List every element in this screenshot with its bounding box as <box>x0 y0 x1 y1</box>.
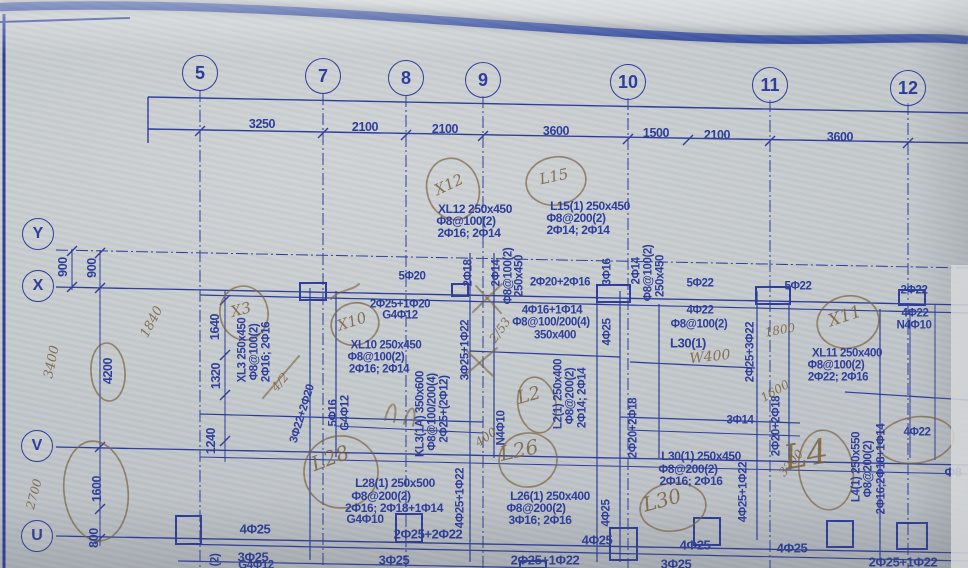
grid-bubble-12: 12 <box>890 70 926 106</box>
blueprint-photo: XL12 250x450Φ8@100(2)2Φ16; 2Φ14L15(1) 25… <box>0 0 968 568</box>
beam-label: L30(1) <box>670 337 706 350</box>
beam-label: G4Φ12 <box>382 310 418 322</box>
beam-label: L2(1) 250x400 <box>553 359 565 429</box>
handwritten-note: 2/53 <box>487 316 512 345</box>
beam-label: 2Φ16; 2Φ16 <box>261 322 273 382</box>
beam-label: 2Φ18 <box>463 259 475 286</box>
beam-label: Φ8@100(2) <box>249 324 261 381</box>
dimension-label: 1600 <box>91 476 104 502</box>
beam-label: 2Φ25+(2Φ12) <box>439 375 451 442</box>
beam-label: G4Φ12 <box>340 395 352 431</box>
beam-label: 2Φ25+1Φ22 <box>869 556 938 568</box>
dimension-label: 3600 <box>827 131 853 144</box>
beam-label: Φ8@100/200(4) <box>512 317 589 329</box>
beam-label: L4(1) 250x550 <box>851 432 863 502</box>
handwritten-note: X12 <box>432 172 465 198</box>
beam-label: 2Φ14 <box>631 257 643 284</box>
handwritten-note: 3400 <box>42 344 62 379</box>
beam-label: N4Φ10 <box>897 320 932 332</box>
grid-bubble-U: U <box>21 520 53 552</box>
handwritten-note: X11 <box>826 304 863 331</box>
beam-label: 4Φ25 <box>680 539 711 552</box>
handwritten-note: L15 <box>538 167 570 188</box>
beam-label: 4Φ22 <box>903 427 930 439</box>
beam-label: 2Φ22 <box>900 285 927 297</box>
beam-label: 4Φ25 <box>582 534 613 547</box>
beam-label: 2Φ16; 2Φ14 <box>349 364 409 376</box>
beam-label: XL11 250x400 <box>812 348 882 360</box>
beam-label: 2Φ14; 2Φ14 <box>577 368 589 428</box>
beam-label: 4Φ25 <box>240 523 271 536</box>
beam-label: 4Φ25 <box>601 499 613 526</box>
grid-bubble-8: 8 <box>388 60 424 96</box>
beam-label: G4Φ12 <box>238 560 274 568</box>
beam-label: 2Φ14 <box>491 259 503 286</box>
beam-label: Φ8@100(2) <box>671 319 728 331</box>
beam-label: 2Φ20+2Φ18 <box>771 396 783 456</box>
beam-label: Φ8@200(2) <box>565 368 577 425</box>
dimension-label: 900 <box>57 257 70 277</box>
handwritten-note: X10 <box>336 310 369 333</box>
handwritten-note: 1840 <box>138 304 165 339</box>
handwritten-note: W400 <box>689 348 731 366</box>
beam-label: 3Φ16 <box>602 258 614 285</box>
paper-edge <box>951 265 968 568</box>
beam-label: 4Φ22 <box>686 305 713 317</box>
handwritten-note: 1800 <box>764 321 796 338</box>
handwritten-note: L28 <box>308 442 351 474</box>
dimension-label: 3250 <box>249 118 275 131</box>
beam-label: 3Φ25+1Φ22 <box>460 320 472 380</box>
beam-label: 5Φ20 <box>398 271 425 283</box>
beam-label: 4Φ25+1Φ22 <box>455 468 467 528</box>
dimension-label: 1240 <box>205 428 218 454</box>
beam-label: 350x400 <box>534 330 576 342</box>
beam-label: 250x450 <box>514 255 526 297</box>
beam-label: 3Φ14 <box>726 415 753 427</box>
beam-label: 3Φ25 <box>379 554 410 567</box>
beam-label: 2Φ25+3Φ22 <box>745 322 757 382</box>
dimension-label: 900 <box>86 258 99 278</box>
handwritten-note: L2 <box>515 384 542 407</box>
beam-label: (2) <box>210 554 222 567</box>
beam-label: Φ8@100(2) <box>348 352 405 364</box>
beam-label: L28(1) 250x500 <box>355 477 435 489</box>
beam-label: XL10 250x450 <box>351 340 422 352</box>
beam-label: 3Φ16; 2Φ16 <box>508 514 571 526</box>
beam-label: 250x450 <box>655 255 667 297</box>
beam-label: 2Φ22; 2Φ16 <box>808 372 868 384</box>
grid-bubble-X: X <box>22 270 54 302</box>
dimension-label: 1640 <box>209 314 222 340</box>
beam-label: G4Φ10 <box>346 513 383 525</box>
grid-bubble-7: 7 <box>305 58 341 94</box>
dimension-label: 2100 <box>352 121 378 134</box>
handwritten-note: X3 <box>229 300 252 320</box>
beam-label: Φ8@100/200(4) <box>427 373 439 450</box>
grid-bubble-Y: Y <box>22 218 54 250</box>
beam-label: XL3 250x450 <box>237 318 249 383</box>
beam-label: Φ8@200(2) <box>863 441 875 498</box>
labels-layer: XL12 250x450Φ8@100(2)2Φ16; 2Φ14L15(1) 25… <box>0 0 968 568</box>
handwritten-note: 2700 <box>24 478 43 511</box>
beam-label: Φ8@100(2) <box>643 245 655 302</box>
dimension-label: 800 <box>88 528 101 548</box>
dimension-label: 1500 <box>643 127 669 140</box>
beam-label: 2Φ14; 2Φ14 <box>546 224 609 236</box>
beam-label: 2Φ20+2Φ18 <box>628 398 640 458</box>
beam-label: 4Φ22 <box>901 308 928 320</box>
beam-label: 4Φ25 <box>602 318 614 345</box>
grid-bubble-V: V <box>21 430 53 462</box>
dimension-label: 1320 <box>210 363 223 389</box>
beam-label: 2Φ16; 2Φ14 <box>437 227 500 239</box>
beam-label: 5Φ16 <box>328 399 340 426</box>
beam-label: 4Φ25 <box>777 542 808 555</box>
beam-label: 2Φ25+2Φ22 <box>394 528 463 541</box>
beam-label: 5Φ22 <box>686 278 713 290</box>
beam-label: 5Φ22 <box>784 281 811 293</box>
dimension-label: 2100 <box>432 123 458 136</box>
grid-bubble-9: 9 <box>465 62 501 98</box>
beam-label: 4Φ25+1Φ22 <box>738 462 750 522</box>
grid-bubble-11: 11 <box>752 67 788 103</box>
handwritten-note: L26 <box>498 436 540 464</box>
grid-bubble-5: 5 <box>182 55 218 91</box>
beam-label: KL3(1A) 350x600 <box>415 371 427 457</box>
dimension-label: 3600 <box>543 125 569 138</box>
handwritten-note: L30 <box>641 485 684 514</box>
dimension-label: 2100 <box>704 129 730 142</box>
beam-label: 2Φ25+1Φ22 <box>511 554 580 567</box>
dimension-label: 4200 <box>102 358 115 384</box>
beam-label: Φ8@100(2) <box>808 360 865 372</box>
grid-bubble-10: 10 <box>610 64 646 100</box>
beam-label: 3Φ22+2Φ20 <box>289 383 318 444</box>
beam-label: 2Φ16;2Φ18+1Φ14 <box>876 424 888 515</box>
beam-label: L30(1) 250x450 <box>661 450 741 462</box>
beam-label: 3Φ25 <box>661 558 692 568</box>
beam-label: 4Φ16+1Φ14 <box>522 305 582 317</box>
beam-label: 2Φ20+2Φ16 <box>530 277 590 289</box>
